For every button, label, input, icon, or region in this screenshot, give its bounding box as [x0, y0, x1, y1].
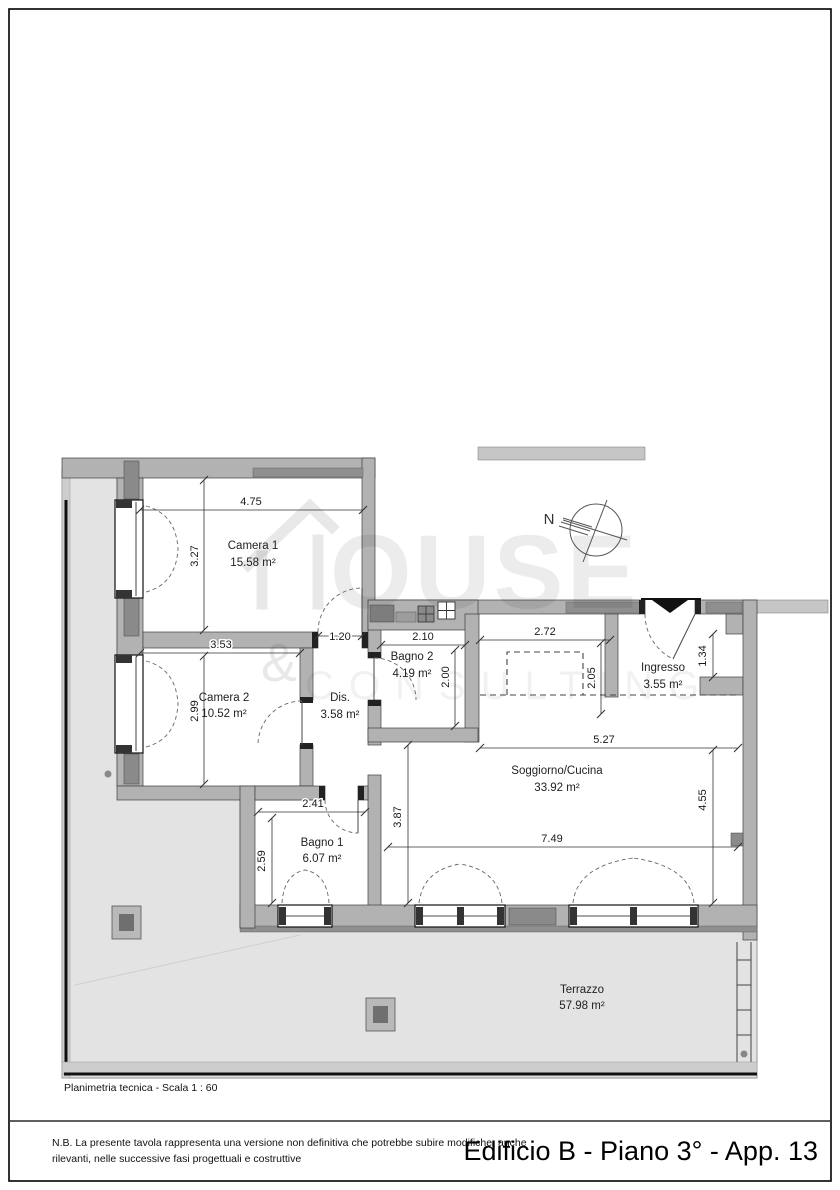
wall-neighbor-top: [478, 447, 645, 460]
room-name: Soggiorno/Cucina: [511, 765, 603, 777]
disclaimer-line1: N.B. La presente tavola rappresenta una …: [52, 1137, 527, 1149]
dim-label: 1.20: [329, 631, 350, 643]
shaft-grid: [418, 606, 434, 622]
room-area: 57.98 m²: [559, 1000, 605, 1012]
wall-camera2-right-b: [300, 745, 313, 786]
dim-label: 2.00: [440, 666, 452, 687]
wall-stripe: [253, 468, 363, 477]
room-area: 3.55 m²: [644, 679, 683, 691]
wall-right: [743, 600, 757, 940]
shaft-window: [438, 602, 455, 619]
room-area: 33.92 m²: [534, 782, 580, 794]
wall-pillar: [124, 461, 139, 499]
wall-neighbor-right: [757, 600, 828, 613]
wall-bagno2-bottom: [368, 728, 478, 742]
vent-block: [396, 612, 416, 622]
dim-label: 2.05: [586, 667, 598, 688]
disclaimer-line2: rilevanti, nelle successive fasi progett…: [52, 1153, 301, 1165]
room-name: Camera 1: [228, 540, 279, 552]
dim-label: 4.55: [697, 789, 709, 810]
wall-pillar: [124, 754, 139, 784]
room-area: 4.19 m²: [393, 668, 432, 680]
dim-label: 1.34: [697, 645, 709, 666]
wall-bagno1-left: [240, 786, 255, 928]
dim-label: 2.41: [302, 798, 323, 810]
room-name: Terrazzo: [560, 984, 604, 996]
room-area: 6.07 m²: [303, 853, 342, 865]
terrace-drain: [105, 771, 112, 778]
scale-note: Planimetria tecnica - Scala 1 : 60: [64, 1082, 218, 1094]
room-area: 10.52 m²: [201, 708, 247, 720]
room-area: 15.58 m²: [230, 557, 276, 569]
dim-label: 7.49: [541, 833, 562, 845]
terrace-pillar: [112, 906, 141, 939]
wall-pillar: [509, 908, 556, 925]
room-name: Camera 2: [199, 692, 250, 704]
room-name: Bagno 1: [301, 837, 344, 849]
terrace-railing-bottom-band: [62, 1062, 757, 1074]
watermark-ampersand: &: [261, 633, 297, 693]
dim-label: 2.10: [412, 631, 433, 643]
room-area: 3.58 m²: [321, 709, 360, 721]
room-name: Bagno 2: [391, 651, 434, 663]
room-name: Dis.: [330, 692, 350, 704]
wall-dis-right-c: [368, 775, 381, 906]
wall-ingresso-pilaster-top: [726, 614, 743, 634]
dim-label: 3.53: [210, 639, 231, 651]
sheet-title: Edificio B - Piano 3° - App. 13: [464, 1136, 819, 1166]
dim-label: 2.59: [256, 850, 268, 871]
north-label: N: [544, 511, 555, 528]
wall-stripe: [706, 602, 742, 613]
dim-label: 3.87: [392, 806, 404, 827]
vent-block: [370, 605, 394, 622]
dim-label: 3.27: [189, 545, 201, 566]
terrace-pillar: [366, 998, 395, 1031]
floor-plan-sheet: OUSE & CONSULTING: [0, 0, 840, 1190]
dim-label: 5.27: [593, 734, 614, 746]
dim-label: 4.75: [240, 496, 261, 508]
floor-plan-drawing: OUSE & CONSULTING: [0, 0, 840, 1190]
room-name: Ingresso: [641, 662, 685, 674]
dim-label: 2.72: [534, 626, 555, 638]
